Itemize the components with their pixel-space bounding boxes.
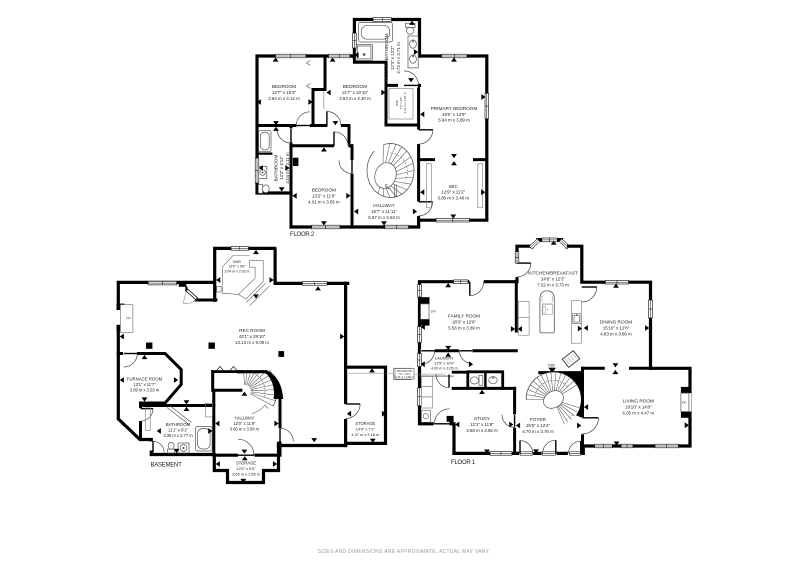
svg-text:18'3" x 12'9": 18'3" x 12'9" <box>452 320 477 325</box>
svg-text:12'1" x 11'8": 12'1" x 11'8" <box>470 422 494 427</box>
svg-text:PRIMARY BATHROOM: PRIMARY BATHROOM <box>384 33 389 82</box>
svg-text:4.37 m x 2.16 m: 4.37 m x 2.16 m <box>351 432 379 437</box>
svg-text:DINING ROOM: DINING ROOM <box>600 320 632 325</box>
svg-text:SIZES AND DIMENSIONS ARE APPRO: SIZES AND DIMENSIONS ARE APPROXIMATE, AC… <box>318 549 491 555</box>
svg-text:BATHROOM: BATHROOM <box>273 155 278 182</box>
svg-text:LIVING ROOM: LIVING ROOM <box>623 399 654 404</box>
svg-text:5.97 m x 3.63 m: 5.97 m x 3.63 m <box>368 215 400 220</box>
svg-text:BAR: BAR <box>233 260 241 264</box>
svg-text:11'1" x 9'1": 11'1" x 9'1" <box>168 428 188 433</box>
svg-text:13'9" x 9'5": 13'9" x 9'5" <box>228 265 246 269</box>
svg-text:12'7" x 10'10": 12'7" x 10'10" <box>342 90 369 95</box>
svg-text:BATHROOM: BATHROOM <box>166 422 191 427</box>
svg-text:13'1" x 11'7": 13'1" x 11'7" <box>133 382 156 387</box>
svg-text:5.56 m x 3.89 m: 5.56 m x 3.89 m <box>448 325 480 330</box>
svg-text:PRIMARY BEDROOM: PRIMARY BEDROOM <box>431 106 478 111</box>
svg-text:BEDROOM: BEDROOM <box>343 84 367 89</box>
svg-text:FLOOR 2: FLOOR 2 <box>290 232 315 238</box>
svg-text:5.94 m x 3.89 m: 5.94 m x 3.89 m <box>438 118 470 123</box>
svg-text:3.84 m x 3.30 m: 3.84 m x 3.30 m <box>339 96 371 101</box>
svg-text:HALLWAY: HALLWAY <box>373 203 395 208</box>
svg-text:FAMILY ROOM: FAMILY ROOM <box>448 314 480 319</box>
svg-text:KITCHEN/BREAKFAST: KITCHEN/BREAKFAST <box>528 271 578 276</box>
svg-text:BEDROOM: BEDROOM <box>272 84 296 89</box>
svg-text:3.99 m x 3.53 m: 3.99 m x 3.53 m <box>130 387 160 392</box>
svg-text:STORAGE: STORAGE <box>355 421 375 426</box>
svg-text:3.04 m x 2.02 m: 3.04 m x 2.02 m <box>224 270 249 274</box>
svg-text:4.00 m x 3.05 m: 4.00 m x 3.05 m <box>431 366 457 370</box>
svg-text:STORAGE: STORAGE <box>236 461 256 466</box>
svg-text:12'0" x 11'9": 12'0" x 11'9" <box>233 421 256 426</box>
svg-text:19'7" x 11'11": 19'7" x 11'11" <box>371 209 397 214</box>
svg-text:4.01 m x 3.56 m: 4.01 m x 3.56 m <box>308 199 340 204</box>
svg-text:2.29 m x 0.89 m: 2.29 m x 0.89 m <box>395 375 414 379</box>
svg-text:24'8" x 12'3": 24'8" x 12'3" <box>541 277 566 282</box>
svg-text:3.68 m x 3.56 m: 3.68 m x 3.56 m <box>466 428 498 433</box>
svg-text:15'10" x 12'8": 15'10" x 12'8" <box>603 326 630 331</box>
svg-text:FOYER: FOYER <box>530 417 547 422</box>
svg-text:7.52 m x 3.73 m: 7.52 m x 3.73 m <box>537 282 569 287</box>
svg-text:43'1" x 29'10": 43'1" x 29'10" <box>239 334 266 339</box>
svg-text:2.21 m x 1.96 m: 2.21 m x 1.96 m <box>403 92 407 113</box>
svg-text:13.13 m x 9.09 m: 13.13 m x 9.09 m <box>235 340 269 345</box>
svg-text:DW: DW <box>548 363 555 368</box>
svg-text:3.66 m x 1.65 m: 3.66 m x 1.65 m <box>232 471 260 476</box>
svg-text:14'4" x 7'1": 14'4" x 7'1" <box>356 426 376 431</box>
svg-text:4.83 m x 3.86 m: 4.83 m x 3.86 m <box>600 331 632 336</box>
svg-text:19'10" x 14'8": 19'10" x 14'8" <box>625 405 652 410</box>
svg-text:4.04 m x 2.11 m: 4.04 m x 2.11 m <box>285 152 290 183</box>
svg-text:3.73 m x 3.71 m: 3.73 m x 3.71 m <box>396 42 401 74</box>
svg-text:12'9" x 11'2": 12'9" x 11'2" <box>441 190 465 195</box>
svg-text:WIC: WIC <box>449 184 459 189</box>
svg-text:FURNACE ROOM: FURNACE ROOM <box>127 377 163 382</box>
svg-text:12'3" x 12'2": 12'3" x 12'2" <box>390 46 395 71</box>
svg-text:6.05 m x 4.47 m: 6.05 m x 4.47 m <box>623 410 655 415</box>
svg-text:FLOOR 1: FLOOR 1 <box>451 460 476 466</box>
svg-text:15'5" x 12'4": 15'5" x 12'4" <box>526 423 551 428</box>
svg-text:BEDROOM: BEDROOM <box>312 188 336 193</box>
svg-text:19'6" x 12'9": 19'6" x 12'9" <box>442 112 467 117</box>
svg-text:3.38 m x 2.77 m: 3.38 m x 2.77 m <box>163 433 193 438</box>
svg-text:4.70 m x 3.76 m: 4.70 m x 3.76 m <box>522 429 554 434</box>
svg-text:3.89 m x 3.40 m: 3.89 m x 3.40 m <box>438 196 470 201</box>
svg-text:13'3" x 6'11": 13'3" x 6'11" <box>279 156 284 180</box>
svg-text:STUDY: STUDY <box>474 416 491 421</box>
svg-text:12'7" x 10'3": 12'7" x 10'3" <box>272 90 297 95</box>
svg-text:LAUNDRY: LAUNDRY <box>435 355 454 360</box>
svg-text:13'2" x 11'8": 13'2" x 11'8" <box>312 194 336 199</box>
svg-text:BASEMENT: BASEMENT <box>150 463 182 469</box>
svg-text:3.66 m x 3.58 m: 3.66 m x 3.58 m <box>230 426 260 431</box>
svg-text:REC ROOM: REC ROOM <box>239 328 265 333</box>
svg-text:3.84 m x 3.12 m: 3.84 m x 3.12 m <box>268 96 300 101</box>
svg-text:13'5" x 10'0": 13'5" x 10'0" <box>434 361 455 365</box>
svg-text:FP: FP <box>126 317 131 321</box>
svg-text:HALLWAY: HALLWAY <box>235 416 255 421</box>
svg-text:12'0" x 5'5": 12'0" x 5'5" <box>236 466 256 471</box>
svg-text:FP: FP <box>431 310 436 314</box>
